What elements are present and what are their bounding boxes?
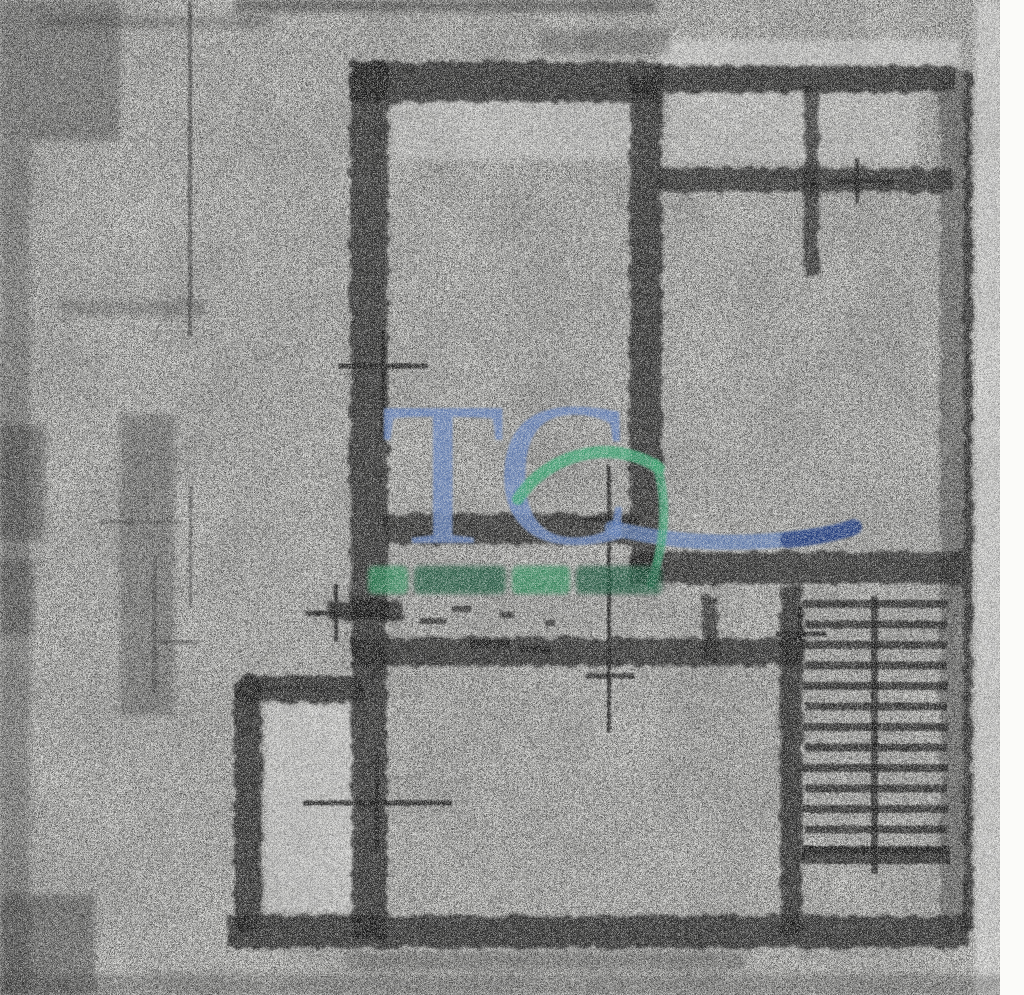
scanned-floorplan-page: TC <box>0 0 1024 995</box>
scan-noise-white-overlay <box>0 0 1024 995</box>
page-margin <box>1000 0 1024 995</box>
floorplan-scan: TC <box>0 0 1024 995</box>
